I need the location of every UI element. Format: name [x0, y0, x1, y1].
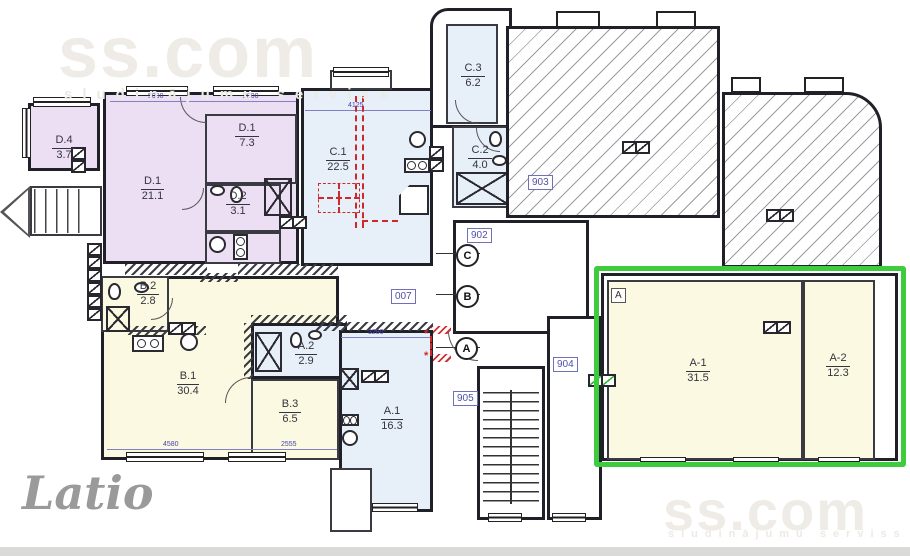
window: [488, 513, 522, 522]
vent-shaft-icon: [429, 146, 444, 159]
dimension-text: 3280: [368, 329, 384, 336]
label-c1: C.122.5: [316, 146, 360, 175]
vent-shaft-icon: [361, 370, 389, 383]
chimney: [656, 11, 696, 28]
dimension-text: 2800: [243, 93, 259, 100]
label-d1-small: D.17.3: [228, 122, 266, 151]
sink-a1-icon: [342, 430, 358, 446]
label-c2: C.24.0: [464, 144, 496, 173]
shower-d2: [264, 178, 292, 216]
dimension-line: [341, 337, 431, 338]
dimension-text: 5090: [148, 93, 164, 100]
red-hatch-wall: [431, 354, 451, 362]
sink-d-kitchen-icon: [209, 236, 226, 253]
label-a1: A.116.3: [370, 405, 414, 434]
room-hatched-right: [722, 92, 882, 268]
stove-b-kitchen-icon: [132, 335, 164, 352]
unit-tag-902: 902: [467, 228, 492, 243]
vent-shaft-icon: [766, 209, 794, 222]
label-c3: C.36.2: [456, 62, 490, 91]
vent-shaft-icon: [87, 308, 102, 321]
sink-b-kitchen-icon: [180, 333, 198, 351]
grid-marker-b: B: [456, 285, 479, 308]
stove-c1-icon: [404, 158, 430, 173]
wall-hatch: [238, 264, 338, 275]
dimension-text: 4125: [348, 102, 364, 109]
wall-hatch: [244, 323, 253, 379]
sink-a2-icon: [308, 330, 322, 340]
red-hatch-wall: [431, 326, 451, 334]
red-mark: *: [424, 328, 428, 340]
vent-shaft-icon: [87, 295, 102, 308]
red-dashed-wall: [362, 96, 364, 228]
vent-shaft-icon: [763, 321, 791, 334]
red-mark: *: [424, 350, 428, 362]
vent-shaft-icon: [87, 269, 102, 282]
label-a2-bath: A.22.9: [290, 340, 322, 369]
bottom-border-band: [0, 547, 910, 556]
label-b3: B.36.5: [272, 398, 308, 427]
exterior-stair-arrow-inner: [4, 190, 28, 234]
window: [372, 503, 418, 512]
window: [126, 452, 204, 462]
floor-plan: ss.com sludinājumu serviss ss.com sludin…: [0, 0, 910, 556]
vent-shaft-icon: [588, 374, 616, 387]
red-dashed-wall: [362, 220, 398, 222]
window: [552, 513, 586, 522]
red-dashed-fixture: [338, 183, 340, 213]
dimension-text: 2555: [281, 441, 297, 448]
window: [640, 457, 686, 467]
label-d1-large: D.121.1: [125, 175, 180, 204]
unit-tag-007: 007: [391, 289, 416, 304]
chimney: [556, 11, 600, 28]
label-b2: B.22.8: [132, 280, 164, 309]
vent-shaft-icon: [622, 141, 650, 154]
watermark-brand-bottom: ss.com: [663, 478, 868, 543]
vent-shaft-icon: [87, 256, 102, 269]
vent-shaft-icon: [279, 216, 307, 229]
exterior-stair-treads: [34, 189, 84, 233]
dimension-line: [110, 101, 296, 102]
watermark-brand-top: ss.com: [58, 12, 318, 94]
dimension-line: [305, 110, 431, 111]
wall-hatch: [125, 264, 207, 275]
corridor-904: [547, 316, 602, 520]
dimension-text: 4580: [163, 441, 179, 448]
window: [333, 67, 389, 77]
unit-tag-904: 904: [553, 357, 578, 372]
label-a2-unit: A-212.3: [814, 352, 862, 381]
shower-b2: [106, 306, 130, 332]
shower-c2: [456, 172, 508, 205]
dimension-line: [107, 449, 337, 450]
stove-d-kitchen-icon: [233, 234, 248, 260]
vent-shaft-icon: [168, 322, 196, 335]
vent-shaft-icon: [429, 159, 444, 172]
window: [733, 457, 779, 467]
label-b1: B.130.4: [164, 370, 212, 399]
label-a1-unit: A-131.5: [672, 357, 724, 386]
sink-c1-icon: [409, 131, 426, 148]
stove-a1-icon: [341, 414, 359, 426]
grid-marker-a: A: [455, 337, 478, 360]
window: [33, 97, 91, 107]
label-d2: D.23.1: [222, 190, 254, 219]
agency-logo: Latio: [22, 466, 154, 520]
chimney: [731, 77, 761, 93]
chimney: [804, 77, 844, 93]
shower-a2: [255, 332, 282, 372]
vent-shaft-icon: [87, 243, 102, 256]
grid-marker-c: C: [456, 244, 479, 267]
porch: [330, 468, 372, 532]
window: [22, 108, 31, 158]
unit-tag-903: 903: [528, 175, 553, 190]
stairs-stringer: [510, 390, 512, 504]
watermark-tagline-bottom: sludinājumu serviss: [668, 528, 907, 540]
block-a-tag: A: [611, 288, 626, 303]
label-d4: D.43.7: [44, 134, 84, 163]
unit-tag-905: 905: [453, 391, 478, 406]
red-dashed-door: [430, 336, 432, 356]
toilet-b2-icon: [108, 283, 121, 300]
window: [228, 452, 286, 462]
room-c1: [301, 88, 433, 266]
window: [818, 457, 860, 467]
vent-shaft-icon: [87, 282, 102, 295]
shower-a1: [340, 368, 359, 390]
